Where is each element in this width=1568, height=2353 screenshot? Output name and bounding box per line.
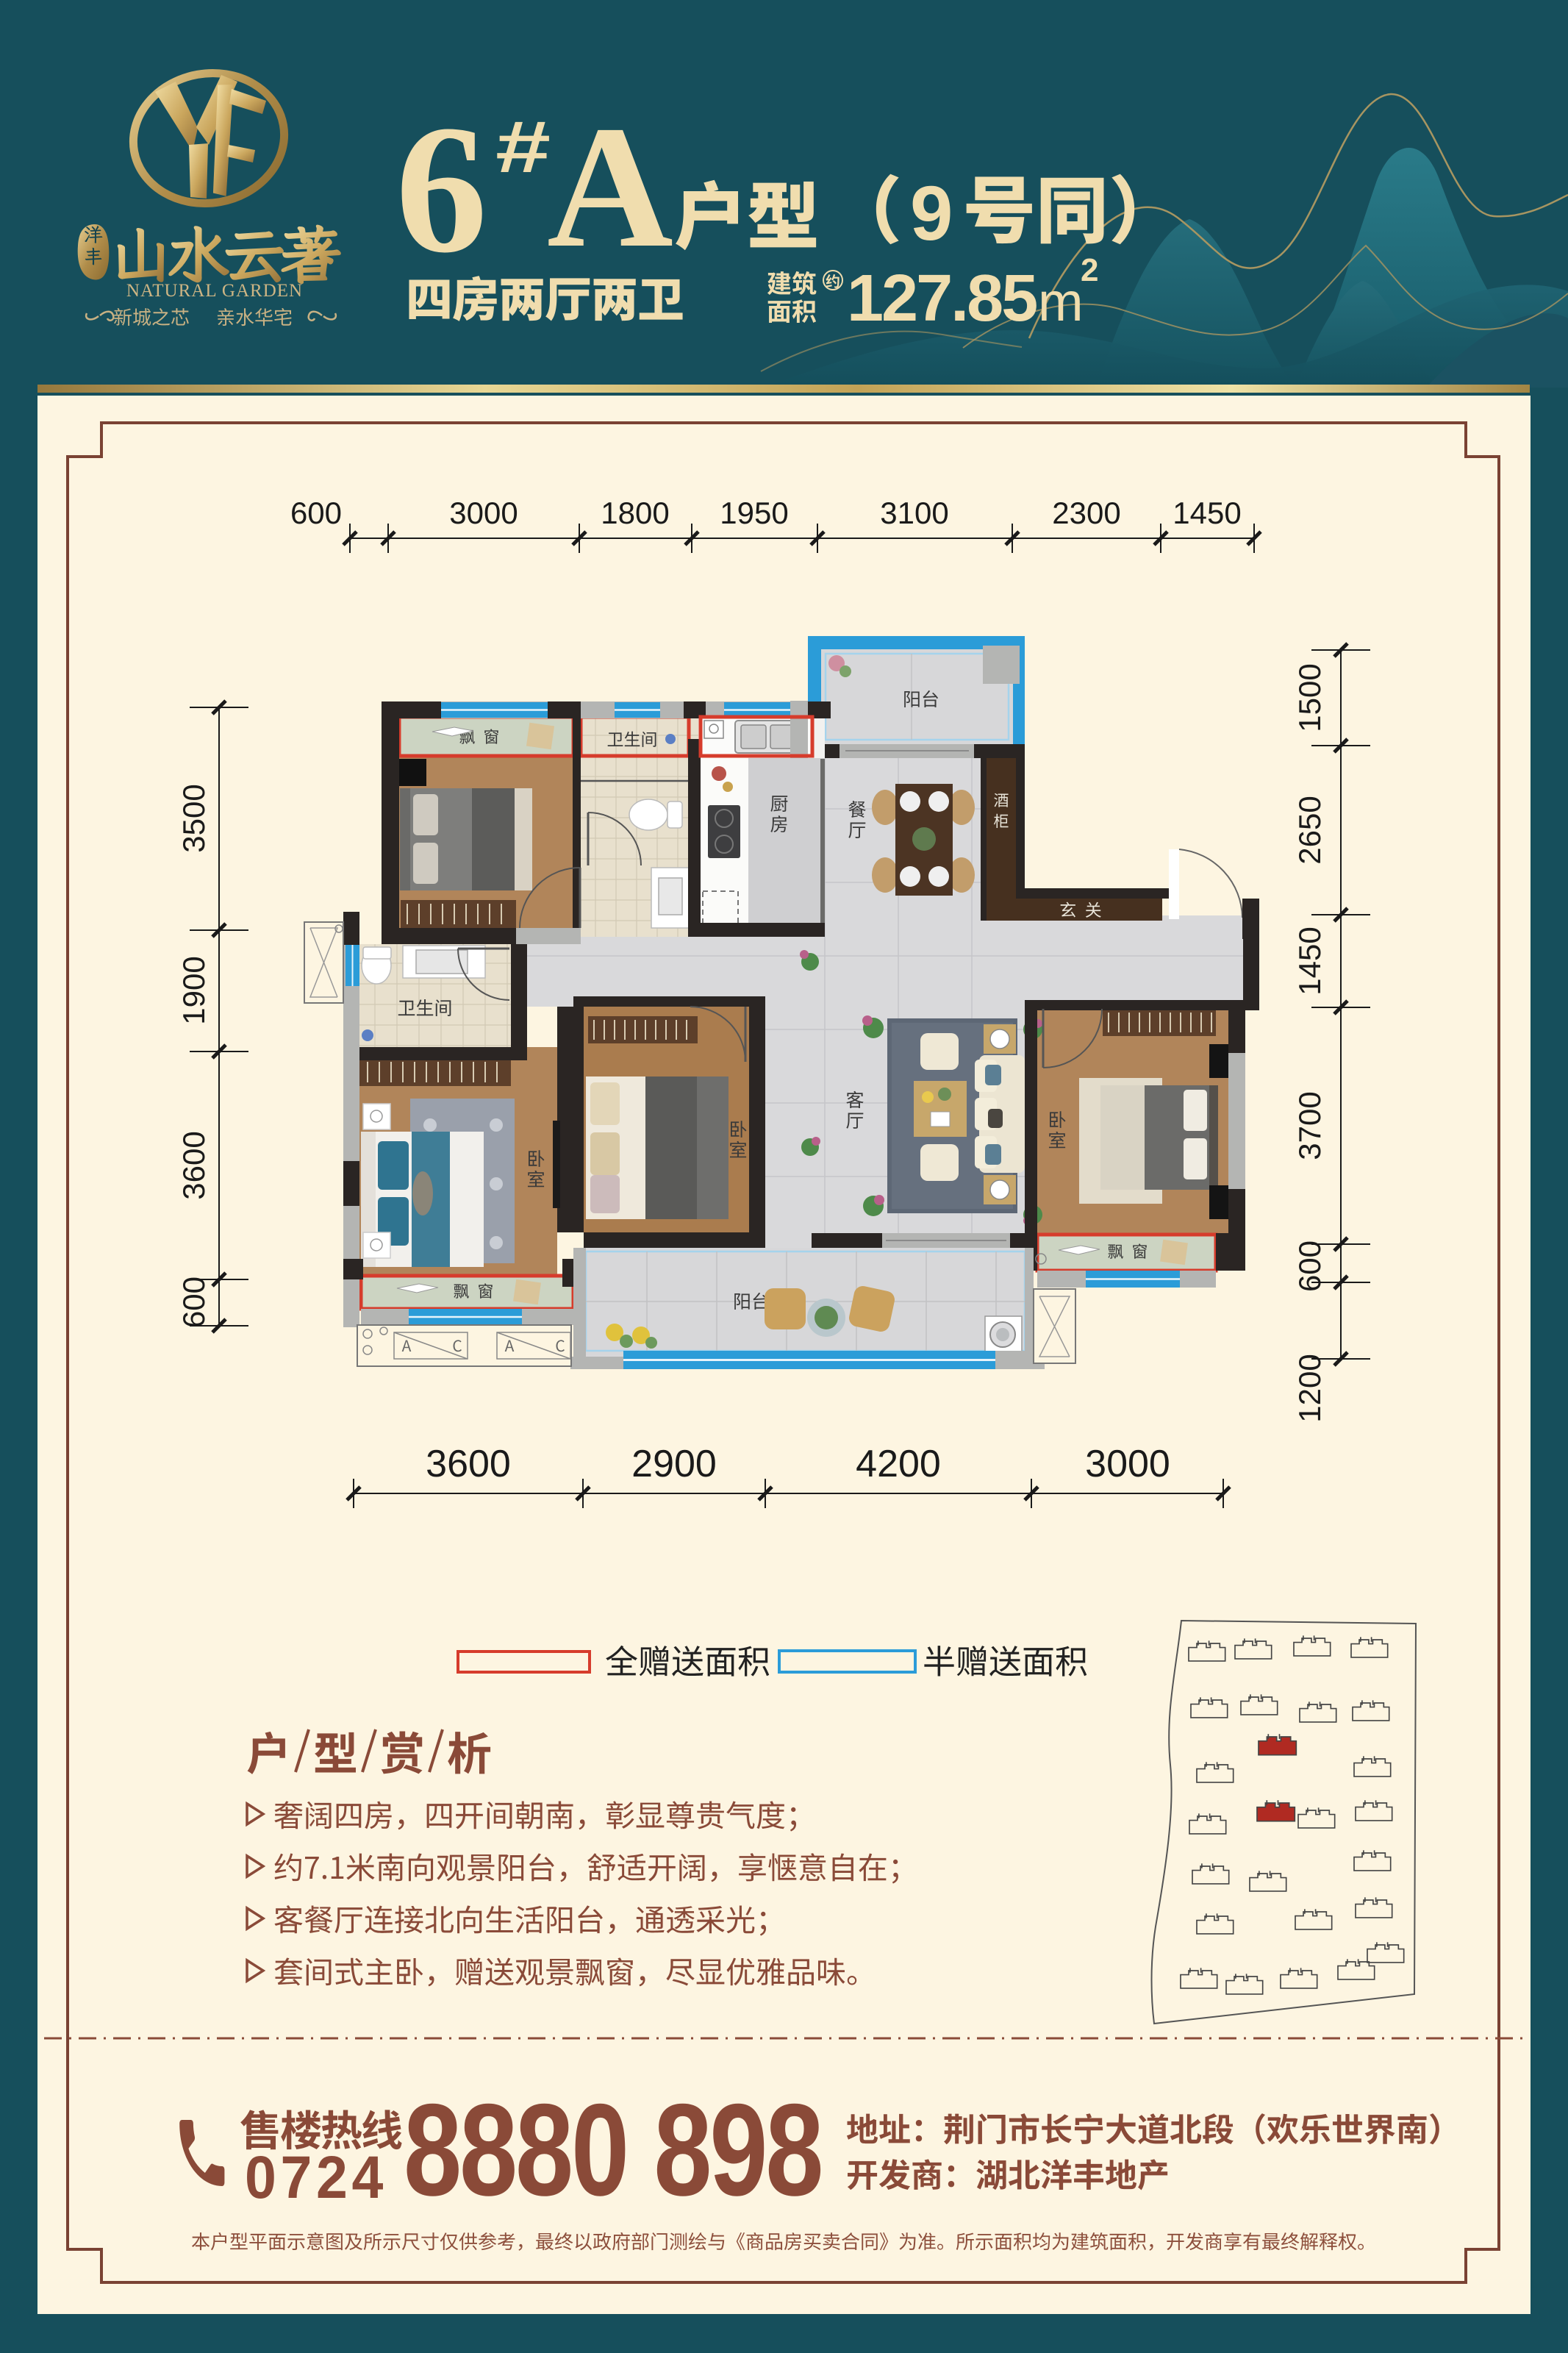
svg-text:1800: 1800 xyxy=(601,496,669,530)
svg-text:A: A xyxy=(547,90,673,284)
svg-text:2: 2 xyxy=(1081,252,1098,288)
svg-text:4200: 4200 xyxy=(856,1443,941,1485)
svg-text:3500: 3500 xyxy=(176,784,211,852)
svg-text:9: 9 xyxy=(910,171,953,257)
svg-text:600: 600 xyxy=(290,496,342,530)
svg-text:#: # xyxy=(495,106,551,188)
svg-text:3600: 3600 xyxy=(176,1131,211,1199)
svg-text:127.85: 127.85 xyxy=(847,262,1037,335)
svg-text:1900: 1900 xyxy=(176,956,211,1024)
svg-text:3100: 3100 xyxy=(880,496,948,530)
svg-text:NATURAL GARDEN: NATURAL GARDEN xyxy=(126,281,303,301)
svg-text:2300: 2300 xyxy=(1052,496,1120,530)
svg-text:1200: 1200 xyxy=(1292,1354,1327,1422)
svg-text:1450: 1450 xyxy=(1173,496,1241,530)
svg-text:3000: 3000 xyxy=(1085,1443,1170,1485)
svg-text:2650: 2650 xyxy=(1292,796,1327,864)
svg-text:3600: 3600 xyxy=(426,1443,511,1485)
svg-text:6: 6 xyxy=(395,88,487,291)
svg-text:8880 898: 8880 898 xyxy=(404,2077,821,2224)
svg-text:1500: 1500 xyxy=(1292,663,1327,732)
svg-text:0724: 0724 xyxy=(245,2143,387,2211)
svg-text:m: m xyxy=(1038,271,1084,332)
svg-text:600: 600 xyxy=(1292,1240,1327,1292)
svg-text:1450: 1450 xyxy=(1292,926,1327,995)
svg-text:3700: 3700 xyxy=(1292,1091,1327,1160)
svg-text:2900: 2900 xyxy=(631,1443,717,1485)
svg-text:3000: 3000 xyxy=(449,496,518,530)
svg-text:600: 600 xyxy=(176,1277,211,1328)
svg-text:1950: 1950 xyxy=(720,496,788,530)
